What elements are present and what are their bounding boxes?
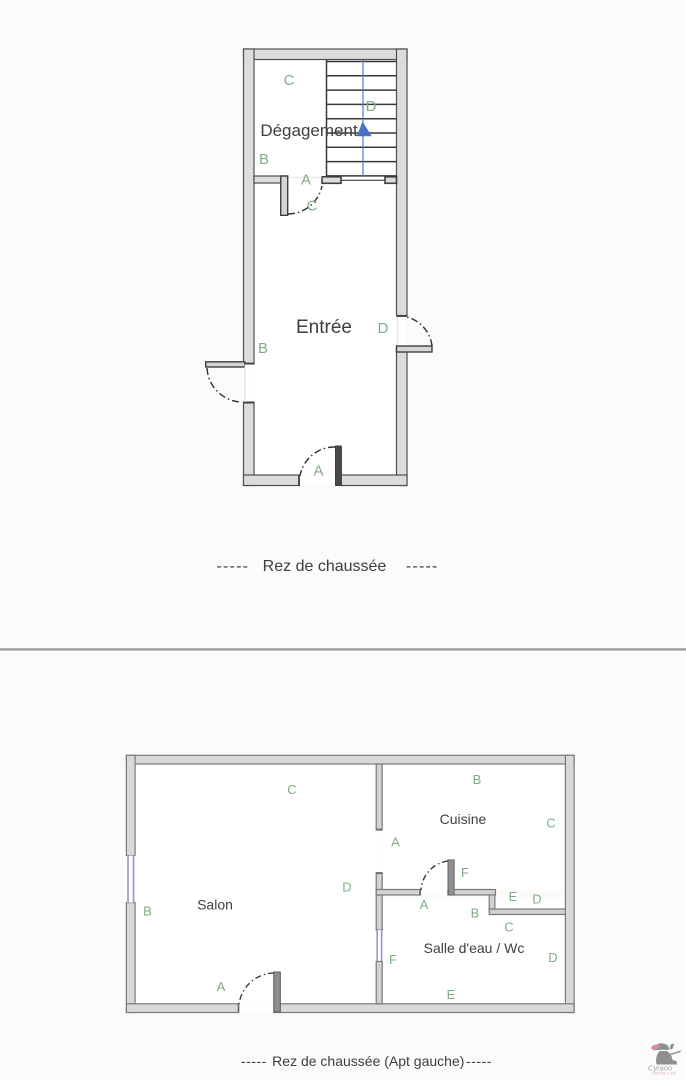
svg-text:D: D — [548, 950, 557, 965]
svg-text:Salon: Salon — [197, 897, 233, 913]
svg-text:B: B — [143, 904, 152, 919]
svg-text:B: B — [471, 906, 480, 921]
svg-text:Rez de chaussée (Apt gauche): Rez de chaussée (Apt gauche) — [272, 1053, 464, 1069]
svg-text:Dégagement: Dégagement — [260, 121, 358, 140]
svg-text:A: A — [313, 463, 323, 480]
svg-text:D: D — [366, 98, 377, 115]
svg-text:C: C — [284, 72, 295, 89]
svg-text:D: D — [378, 320, 389, 337]
svg-text:A: A — [420, 897, 429, 912]
svg-text:-----: ----- — [241, 1053, 267, 1069]
svg-text:A: A — [217, 979, 226, 994]
svg-text:E: E — [509, 889, 518, 904]
svg-text:B: B — [259, 151, 269, 168]
svg-text:Rez de chaussée: Rez de chaussée — [263, 558, 387, 575]
svg-text:Salle d'eau / Wc: Salle d'eau / Wc — [424, 940, 525, 956]
svg-text:F: F — [389, 952, 397, 967]
svg-text:D: D — [342, 880, 351, 895]
svg-text:B: B — [258, 340, 268, 357]
svg-text:C: C — [287, 782, 296, 797]
svg-text:A: A — [301, 172, 311, 189]
svg-text:-----: ----- — [406, 558, 439, 575]
svg-text:F: F — [461, 865, 469, 880]
svg-text:A: A — [391, 835, 400, 850]
svg-text:C: C — [546, 816, 555, 831]
svg-text:Entrée: Entrée — [296, 317, 352, 338]
svg-text:-----: ----- — [217, 558, 250, 575]
svg-text:C: C — [504, 920, 513, 935]
svg-text:D: D — [532, 892, 541, 907]
svg-text:B: B — [473, 772, 482, 787]
svg-text:Cuisine: Cuisine — [440, 811, 487, 827]
svg-text:IMMOBILIER: IMMOBILIER — [652, 1072, 677, 1076]
svg-text:C: C — [307, 198, 318, 215]
svg-text:E: E — [447, 987, 456, 1002]
svg-text:-----: ----- — [466, 1053, 492, 1069]
